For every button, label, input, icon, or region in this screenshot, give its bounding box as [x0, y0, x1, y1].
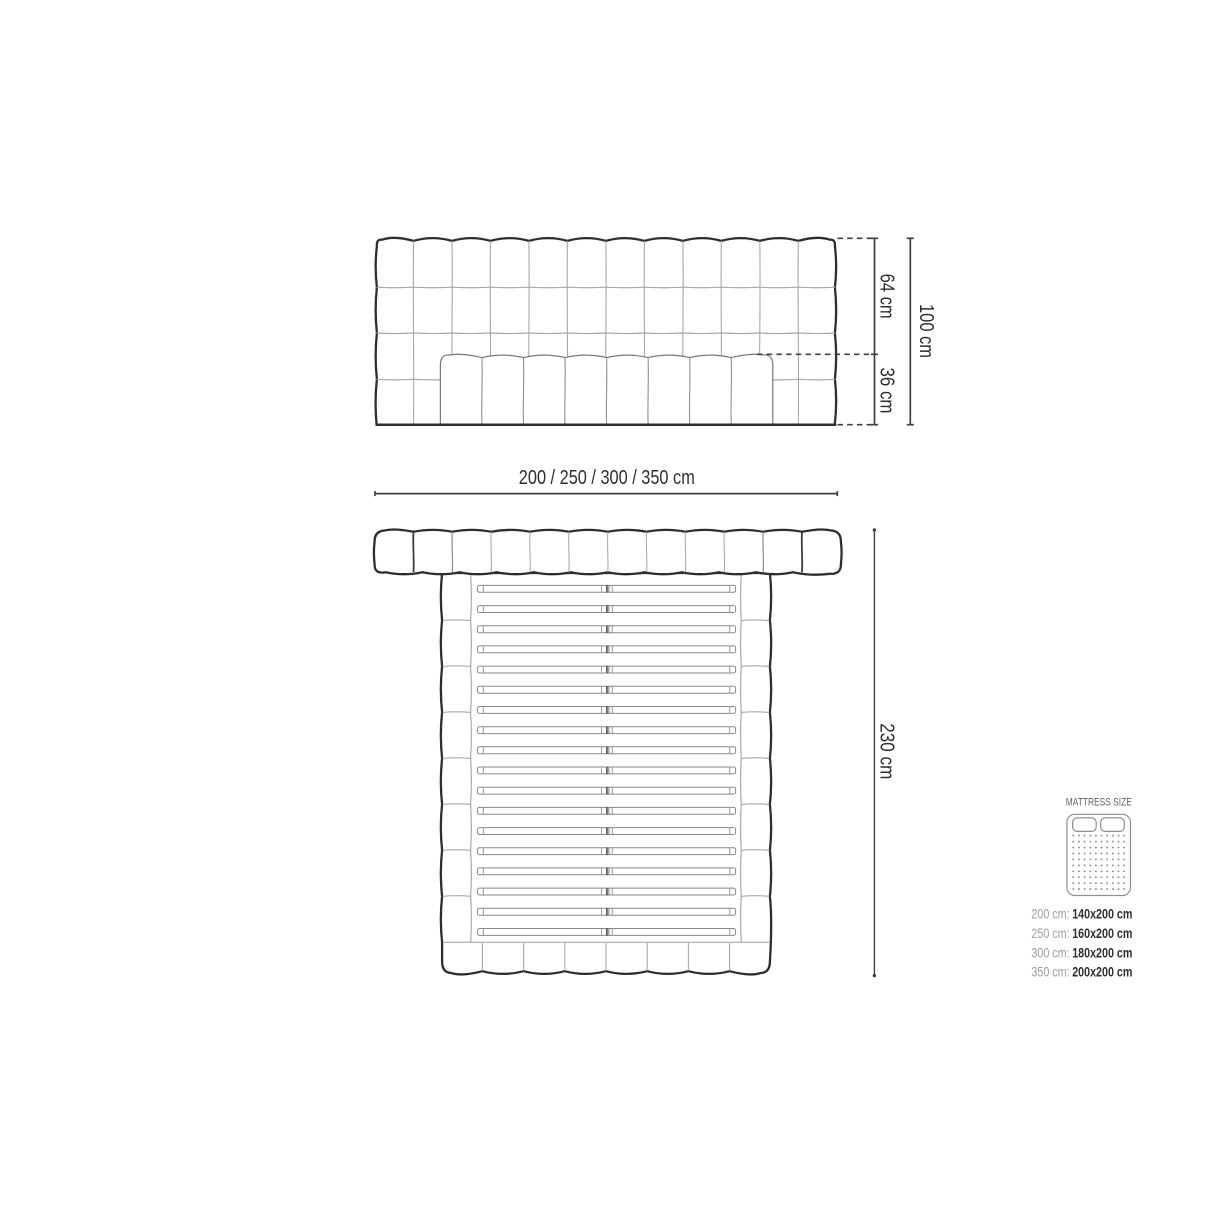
svg-text:100 cm: 100 cm [915, 304, 937, 358]
svg-text:160x200 cm: 160x200 cm [1072, 925, 1132, 941]
svg-text:140x200 cm: 140x200 cm [1072, 906, 1132, 922]
svg-text:350 cm:: 350 cm: [1031, 964, 1069, 980]
svg-text:36 cm: 36 cm [875, 368, 897, 414]
svg-text:200x200 cm: 200x200 cm [1072, 964, 1132, 980]
svg-text:230 cm: 230 cm [876, 723, 898, 779]
svg-text:180x200 cm: 180x200 cm [1072, 944, 1132, 960]
svg-text:250 cm:: 250 cm: [1031, 925, 1069, 941]
svg-text:64 cm: 64 cm [875, 274, 897, 319]
svg-text:200 cm:: 200 cm: [1031, 906, 1069, 922]
svg-text:MATTRESS SIZE: MATTRESS SIZE [1066, 796, 1132, 808]
svg-text:200 / 250 / 300 / 350 cm: 200 / 250 / 300 / 350 cm [519, 467, 695, 489]
svg-text:300 cm:: 300 cm: [1031, 944, 1069, 960]
